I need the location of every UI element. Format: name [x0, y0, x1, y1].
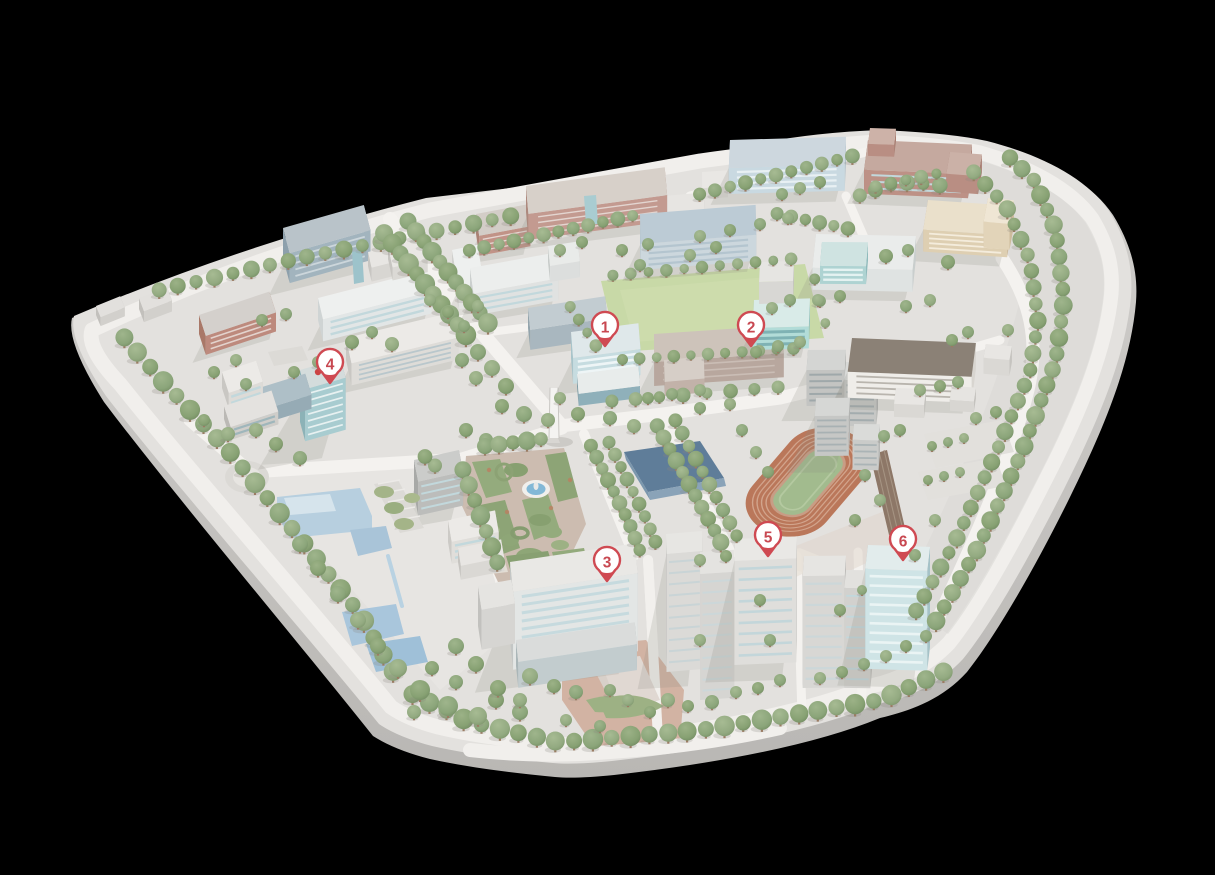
svg-text:2: 2: [747, 319, 756, 336]
svg-text:6: 6: [899, 533, 908, 550]
svg-text:5: 5: [764, 529, 773, 546]
svg-text:3: 3: [603, 554, 612, 571]
svg-text:1: 1: [601, 319, 610, 336]
svg-text:4: 4: [326, 356, 335, 373]
